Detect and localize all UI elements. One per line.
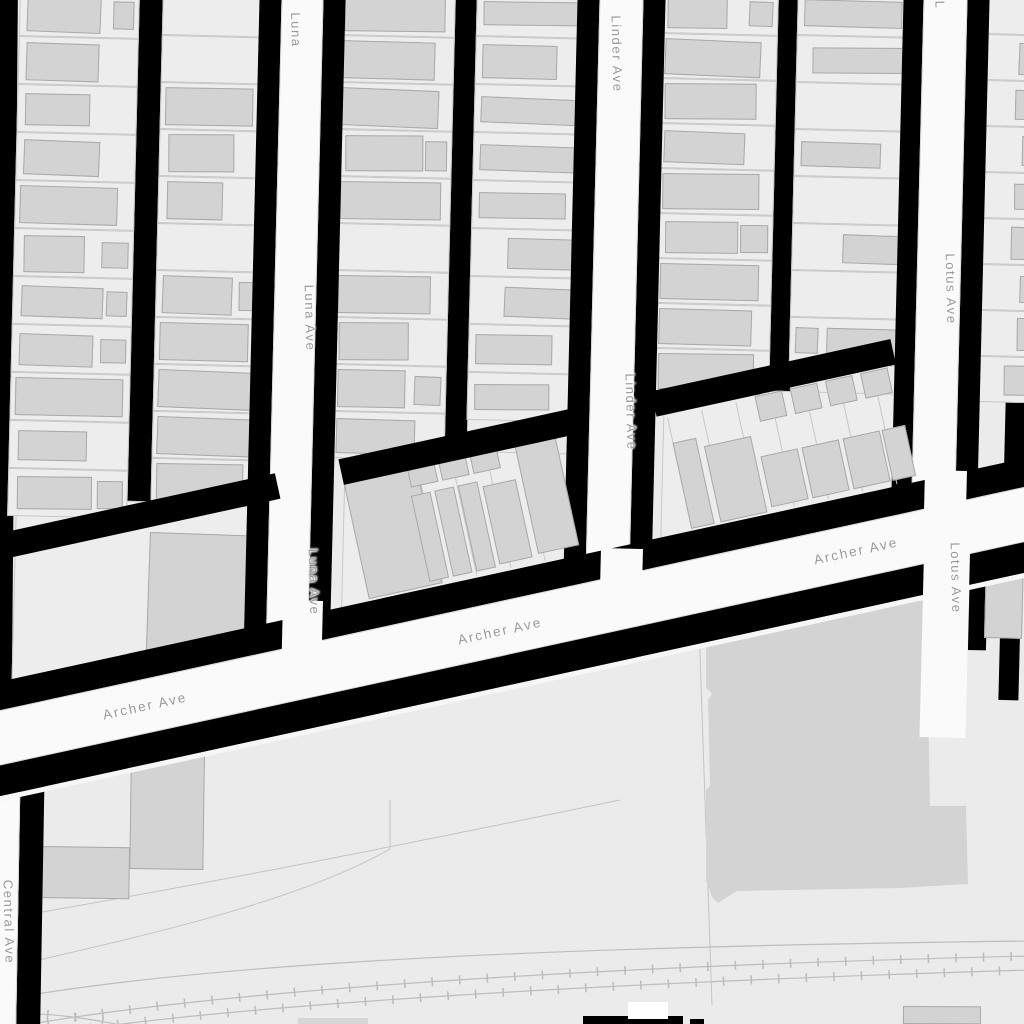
lot: [153, 364, 262, 414]
street-junction-patch: [923, 470, 967, 543]
lot: [983, 80, 1024, 127]
lot: [979, 218, 1024, 265]
parcel-column: [329, 0, 456, 461]
building-footprint: [741, 225, 769, 253]
lot: [19, 0, 140, 39]
building-footprint: [479, 144, 588, 174]
lot: [654, 258, 772, 306]
building-footprint: [1014, 184, 1024, 210]
white-parcel: [628, 1002, 668, 1019]
building-footprint: [664, 38, 761, 78]
building-footprint: [664, 83, 757, 120]
lot: [976, 356, 1024, 403]
lot: [13, 228, 134, 279]
building-footprint: [23, 139, 100, 177]
building-footprint: [479, 192, 567, 219]
building-footprint: [161, 275, 232, 316]
lot: [14, 180, 135, 231]
street-label-linder-mid: Linder Ave: [623, 373, 640, 451]
building-footprint: [800, 141, 881, 169]
building-footprint: [337, 369, 406, 409]
street-label-linder-top: Linder Ave: [609, 15, 626, 93]
lot: [653, 303, 771, 351]
building-footprint: [156, 416, 250, 457]
street-label-central: Central Ave: [0, 880, 17, 965]
lot: [658, 123, 776, 171]
lot: [9, 372, 130, 423]
building-footprint: [15, 377, 124, 418]
street-label-lotus-mid: Lotus Ave: [943, 253, 960, 325]
lot: [980, 172, 1024, 219]
gray-sliver: [298, 1018, 368, 1024]
building-footprint: [337, 275, 431, 314]
lot: [12, 276, 133, 327]
building-footprint: [804, 0, 903, 29]
building-footprint: [159, 322, 249, 362]
building-footprint: [664, 131, 746, 166]
street-label-lotus-top: L: [932, 0, 947, 9]
building-footprint: [24, 93, 89, 127]
lot: [331, 317, 448, 367]
building-footprint: [480, 96, 582, 127]
street-label-luna-mid: Luna Ave: [302, 284, 319, 351]
lot: [335, 129, 452, 179]
lot: [985, 0, 1024, 35]
lot: [339, 0, 456, 38]
lot: [660, 33, 778, 81]
parcel-column: [652, 0, 779, 396]
lot: [11, 324, 132, 375]
street-junction-patch: [599, 548, 643, 621]
lot: [978, 264, 1024, 311]
building-footprint: [665, 221, 738, 254]
building-footprint: [21, 286, 104, 320]
building-footprint: [662, 173, 759, 210]
lot: [984, 34, 1024, 81]
building-footprint: [474, 384, 549, 411]
lot: [16, 84, 137, 135]
building-footprint: [658, 308, 752, 346]
building-footprint: [167, 181, 224, 221]
building-footprint: [97, 481, 123, 510]
building-footprint: [101, 242, 128, 269]
lot: [332, 270, 449, 320]
lot: [162, 0, 271, 38]
building-footprint: [1019, 276, 1024, 303]
building-footprint: [106, 291, 128, 316]
building-footprint: [1003, 366, 1024, 396]
street-label-lotus-low: Lotus Ave: [948, 542, 965, 614]
building-footprint: [17, 477, 92, 511]
lot: [154, 317, 263, 367]
lot: [18, 36, 139, 87]
lot: [155, 270, 264, 320]
lot: [334, 176, 451, 226]
building-footprint: [749, 1, 774, 27]
lot: [156, 223, 265, 273]
lot: [982, 126, 1024, 173]
lot: [330, 364, 447, 414]
building-footprint: [25, 42, 99, 82]
lot: [15, 132, 136, 183]
building-footprint: [343, 40, 436, 80]
building-footprint: [1017, 318, 1024, 352]
lot: [657, 168, 775, 216]
building-footprint: [27, 0, 102, 34]
building-footprint: [345, 136, 423, 172]
map-canvas[interactable]: LunaLinder AveLLuna AveLinder AveLotus A…: [0, 0, 1024, 1024]
building-footprint: [425, 141, 448, 171]
lot: [977, 310, 1024, 357]
parcel-column: [7, 0, 140, 519]
building-footprint: [169, 135, 235, 173]
building-footprint: [414, 376, 442, 406]
building-footprint: [340, 181, 441, 220]
lot: [661, 0, 779, 36]
building-footprint: [795, 327, 819, 354]
lot: [659, 78, 777, 126]
building-footprint: [903, 1006, 981, 1024]
lot: [8, 420, 129, 471]
building-footprint: [1014, 90, 1024, 121]
lot: [160, 82, 269, 132]
lot: [333, 223, 450, 273]
lot: [337, 82, 454, 132]
lot: [161, 35, 270, 85]
building-footprint: [17, 430, 87, 462]
building-footprint: [100, 339, 126, 364]
building-footprint: [113, 1, 135, 29]
building-footprint: [344, 0, 446, 32]
street-label-luna-low: Luna Ave: [306, 548, 323, 615]
building-footprint: [341, 87, 439, 129]
building-footprint: [482, 44, 557, 80]
building-footprint: [659, 263, 759, 301]
building-footprint: [19, 185, 118, 226]
building-footprint: [37, 846, 130, 899]
lot: [338, 35, 455, 85]
building-footprint: [1010, 226, 1024, 260]
lot: [157, 176, 266, 226]
building-footprint: [1018, 43, 1024, 76]
lot: [158, 129, 267, 179]
building-footprint: [475, 334, 552, 365]
building-footprint: [339, 322, 409, 361]
building-footprint: [23, 235, 85, 273]
building-footprint: [157, 369, 253, 410]
building-footprint: [18, 333, 93, 368]
lot: [152, 411, 261, 461]
building-footprint: [668, 0, 729, 28]
lot: [655, 213, 773, 261]
street-label-luna-top: Luna: [288, 12, 304, 48]
alley-band: [690, 1019, 704, 1024]
building-footprint: [165, 87, 254, 126]
